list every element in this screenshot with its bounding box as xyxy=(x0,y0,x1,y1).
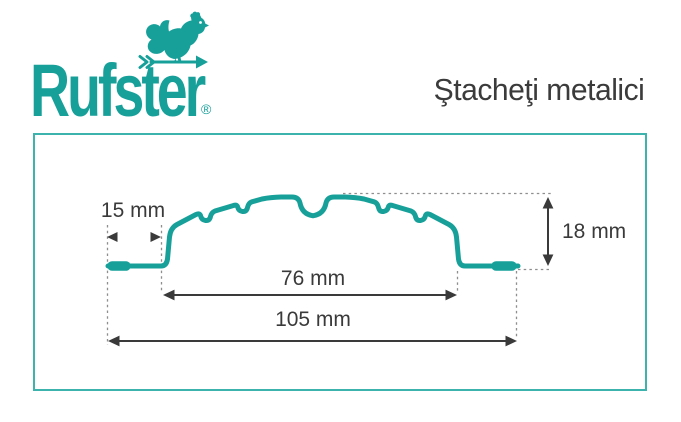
dim-arrow-76mm xyxy=(163,290,457,301)
dim-arrows-15mm xyxy=(107,232,161,242)
dim-label-edge-width: 15 mm xyxy=(91,200,175,222)
dim-label-total-width: 105 mm xyxy=(255,309,371,331)
dim-arrow-18mm xyxy=(543,197,554,266)
rufster-spec-sheet: Rufster ® Ştacheţi metalici xyxy=(0,0,681,422)
dim-label-crown-width: 76 mm xyxy=(258,268,368,290)
dim-arrow-105mm xyxy=(108,336,517,347)
dim-label-height: 18 mm xyxy=(562,221,626,243)
